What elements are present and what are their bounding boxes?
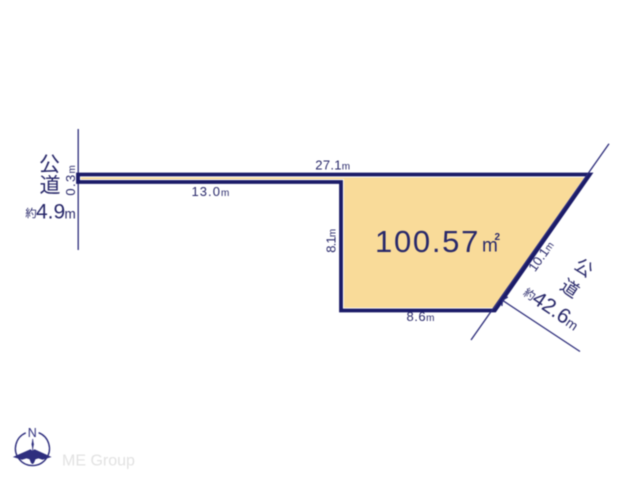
svg-text:ME Group: ME Group [62, 453, 135, 470]
svg-text:m: m [65, 207, 76, 222]
svg-text:4.9: 4.9 [36, 201, 65, 224]
svg-text:100.57: 100.57 [375, 224, 480, 259]
svg-text:N: N [28, 426, 37, 440]
svg-text:2: 2 [495, 232, 501, 243]
